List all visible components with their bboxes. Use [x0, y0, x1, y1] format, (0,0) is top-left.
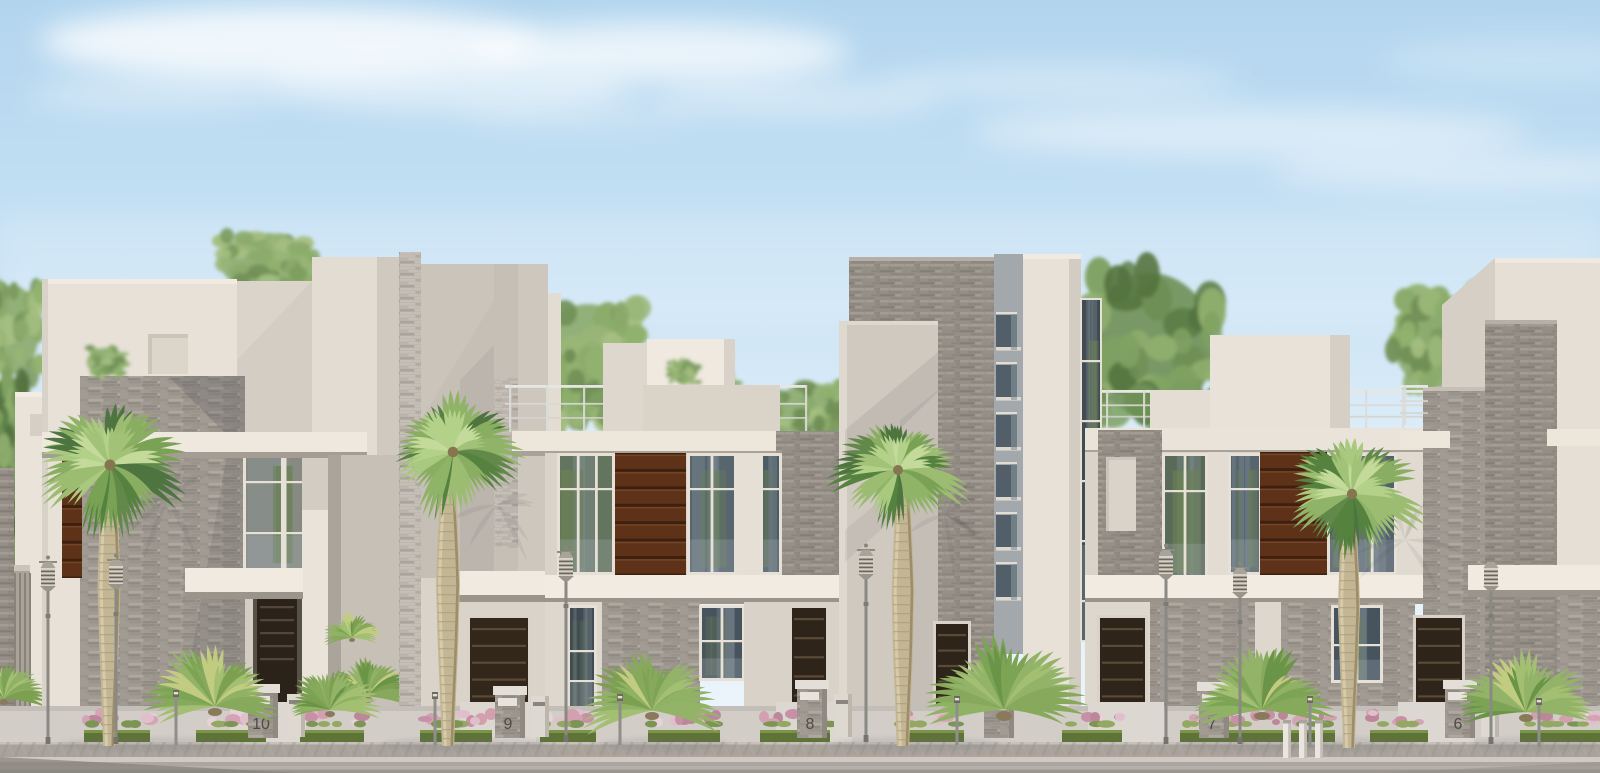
svg-text:6: 6: [1454, 716, 1463, 733]
svg-text:9: 9: [504, 716, 513, 733]
svg-text:8: 8: [806, 716, 815, 733]
